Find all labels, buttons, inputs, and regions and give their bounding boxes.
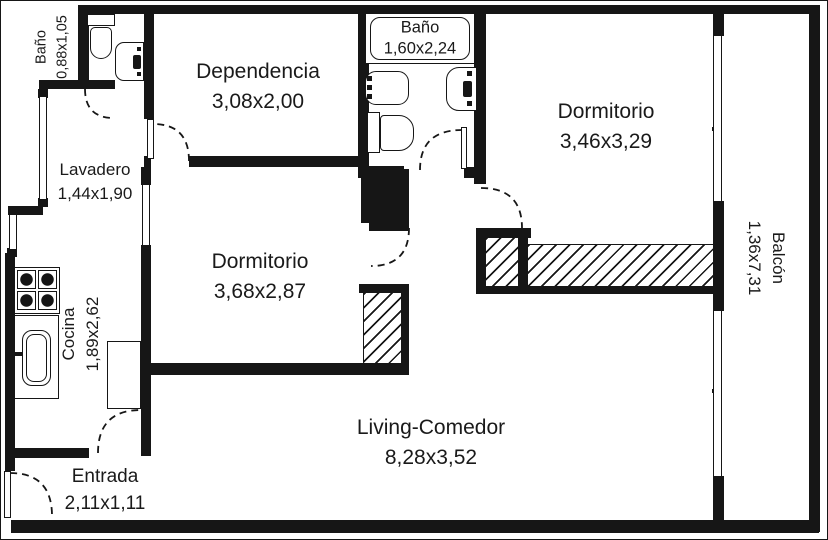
stove-burner-icon [17,291,36,310]
room-name: Dependencia [196,57,320,87]
faucet-tick [467,71,472,76]
room-label-cocina: Cocina 1,89x2,62 [57,297,105,372]
door-arc [85,89,114,118]
floor-plan: Baño 0,88x1,05 Dependencia 3,08x2,00 Bañ… [0,0,828,540]
toilet-bowl-fixture [380,115,414,151]
door-arc [153,124,189,161]
room-label-dormitorio-1: Dormitorio 3,46x3,29 [558,97,655,157]
room-dims: 1,89x2,62 [81,297,105,372]
room-name: Cocina [57,297,81,372]
room-dims: 3,46x3,29 [558,127,655,157]
room-label-entrada: Entrada 2,11x1,11 [65,464,146,518]
room-label-lavadero: Lavadero 1,44x1,90 [58,158,133,206]
room-label-bano-small: Baño 0,88x1,05 [31,15,72,79]
faucet-tick [467,101,472,106]
room-dims: 3,08x2,00 [196,87,320,117]
room-dims: 3,68x2,87 [212,277,309,307]
cabinet-fixture [107,341,141,409]
door-arc [98,410,141,453]
room-name: Baño [31,15,52,79]
faucet-tick [137,72,141,76]
door-arc [420,130,462,170]
stove-burner-icon [38,270,57,289]
room-dims: 1,44x1,90 [58,182,133,206]
faucet-tick [367,85,372,90]
room-name: Dormitorio [212,247,309,277]
door-arc [10,473,52,516]
faucet-tick [367,94,372,99]
room-label-dependencia: Dependencia 3,08x2,00 [196,57,320,117]
room-name: Dormitorio [558,97,655,127]
toilet-tank-fixture [87,14,115,26]
faucet-tick [367,76,372,81]
room-dims: 1,36x7,31 [742,221,766,296]
stove-burner-icon [17,270,36,289]
room-name: Lavadero [58,158,133,182]
door-arc [371,228,409,266]
stove-burner-icon [38,291,57,310]
faucet-icon [463,81,472,97]
room-dims: 0,88x1,05 [52,15,73,79]
toilet-tank-fixture [367,112,380,153]
room-label-balcon: Balcón 1,36x7,31 [742,221,790,296]
door-arc [481,188,522,228]
faucet-tick [137,47,141,51]
room-label-bano-main: Baño 1,60x2,24 [384,18,456,61]
faucet-icon [133,55,141,69]
room-label-dormitorio-2: Dormitorio 3,68x2,87 [212,247,309,307]
room-name: Baño [384,18,456,39]
room-name: Living-Comedor [357,413,505,443]
sink-fixture [446,67,477,111]
room-dims: 8,28x3,52 [357,443,505,473]
room-label-living: Living-Comedor 8,28x3,52 [357,413,505,473]
kitchen-sink-basin [26,334,47,382]
toilet-bowl-fixture [90,27,112,59]
faucet-icon [9,352,23,356]
room-name: Balcón [766,221,790,296]
room-name: Entrada [65,464,146,491]
room-dims: 2,11x1,11 [65,491,146,518]
room-dims: 1,60x2,24 [384,39,456,60]
